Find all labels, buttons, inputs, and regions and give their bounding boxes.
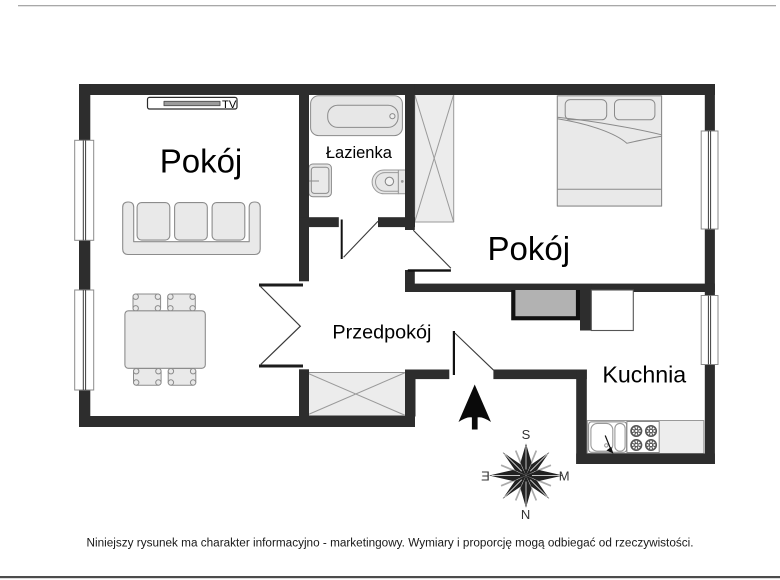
svg-text:N: N xyxy=(521,507,530,522)
svg-text:Przedpokój: Przedpokój xyxy=(332,322,431,344)
svg-text:S: S xyxy=(522,427,531,442)
svg-text:TV: TV xyxy=(222,99,237,111)
svg-text:Pokój: Pokój xyxy=(160,142,243,179)
svg-text:Niniejszy rysunek ma charakter: Niniejszy rysunek ma charakter informacy… xyxy=(87,536,694,549)
svg-text:Ǝ: Ǝ xyxy=(481,469,490,484)
svg-text:Pokój: Pokój xyxy=(488,230,571,267)
svg-text:M: M xyxy=(559,469,570,484)
svg-text:Łazienka: Łazienka xyxy=(326,144,393,162)
svg-text:Kuchnia: Kuchnia xyxy=(602,362,686,388)
